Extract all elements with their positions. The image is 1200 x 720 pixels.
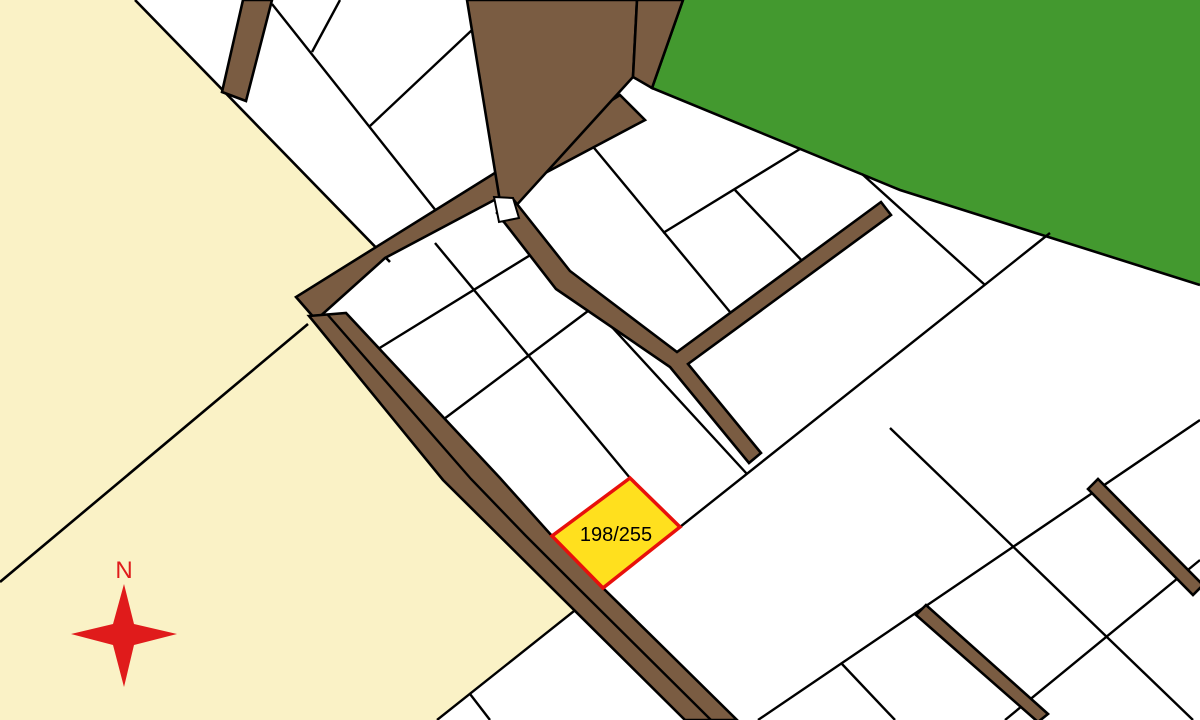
highlighted-parcel-label: 198/255 bbox=[580, 524, 652, 546]
cadastral-map: 198/255 N bbox=[0, 0, 1200, 720]
compass-north-label: N bbox=[115, 557, 132, 584]
